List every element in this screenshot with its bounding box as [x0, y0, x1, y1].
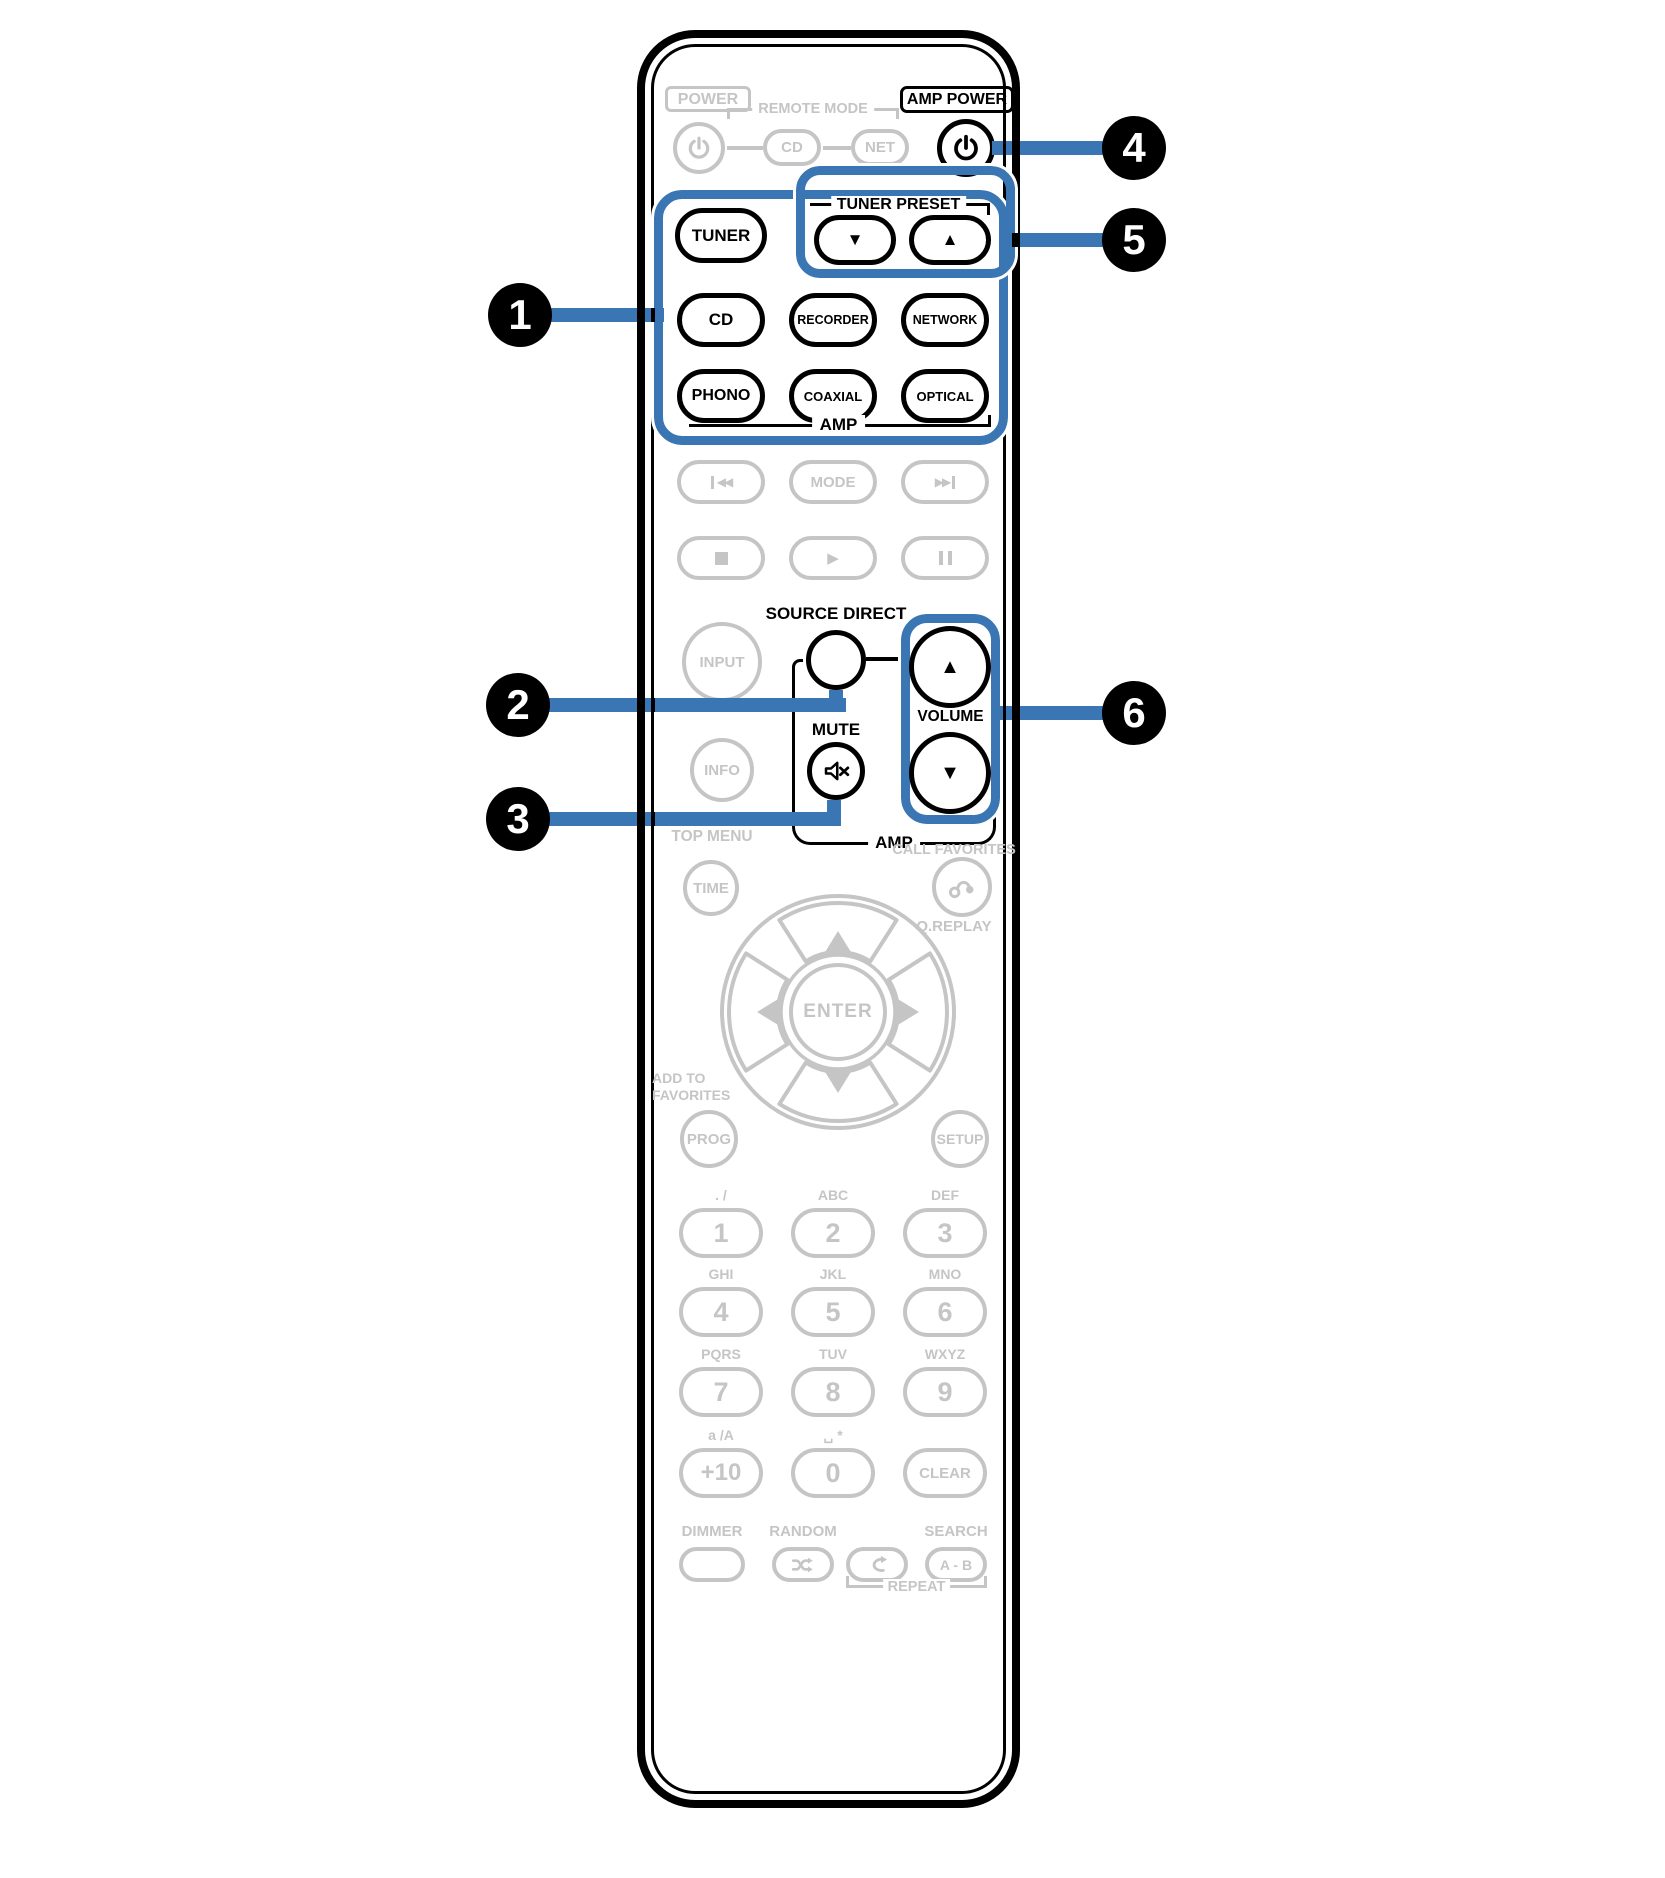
- skip-back-icon: [711, 476, 714, 489]
- input-button: INPUT: [682, 622, 762, 702]
- random-button: [772, 1547, 834, 1582]
- edge-patch: [651, 698, 655, 712]
- key-hint: TUV: [791, 1346, 875, 1362]
- digit-8-button: 8: [791, 1367, 875, 1417]
- search-label: SEARCH: [906, 1523, 1006, 1540]
- remote-body: POWER REMOTE MODE CD NET AMP POWER: [637, 30, 1020, 1808]
- edge-patch: [651, 812, 655, 826]
- remote-mode-bracket: REMOTE MODE: [727, 108, 899, 119]
- connector-line: [823, 146, 851, 150]
- call-favorites-label: CALL FAVORITES: [890, 842, 1018, 858]
- power-icon: [686, 135, 712, 161]
- mode-button: MODE: [789, 460, 877, 504]
- key-hint: MNO: [903, 1266, 987, 1282]
- dimmer-label: DIMMER: [662, 1523, 762, 1540]
- dimmer-button: [679, 1547, 745, 1582]
- play-button: ▶: [789, 536, 877, 580]
- key-hint: ABC: [791, 1187, 875, 1203]
- digit-4-button: 4: [679, 1287, 763, 1337]
- tuner-preset-down-button: ▼: [814, 215, 896, 265]
- edge-patch: [637, 812, 645, 826]
- callout-4-badge: 4: [1102, 116, 1166, 180]
- skip-forward-icon: [952, 476, 955, 489]
- callout-5-line: [1008, 233, 1104, 247]
- repeat-label: REPEAT: [883, 1579, 951, 1595]
- skip-back-glyph: ◀◀: [717, 475, 731, 489]
- callout-3-line: [546, 812, 841, 826]
- sources-amp-label: AMP: [812, 415, 866, 435]
- callout-4-line: [992, 141, 1104, 155]
- remote-control-diagram: POWER REMOTE MODE CD NET AMP POWER: [0, 0, 1665, 1878]
- callout-3-elbow: [827, 800, 841, 826]
- callout-2-line: [546, 698, 846, 712]
- remote-mode-net-button: NET: [851, 129, 909, 166]
- callout-5-badge: 5: [1102, 208, 1166, 272]
- amp-power-label-box: AMP POWER: [900, 86, 1014, 113]
- pause-icon: [948, 551, 952, 565]
- edge-patch: [1003, 706, 1007, 720]
- repeat-bracket: REPEAT: [846, 1576, 987, 1588]
- key-hint: JKL: [791, 1266, 875, 1282]
- volume-down-button: ▼: [909, 732, 991, 814]
- stop-icon: [715, 552, 728, 565]
- network-source-button: NETWORK: [901, 293, 989, 347]
- digit-1-button: 1: [679, 1208, 763, 1258]
- volume-label: VOLUME: [901, 708, 1000, 726]
- tuner-source-button: TUNER: [675, 208, 767, 263]
- recorder-source-button: RECORDER: [789, 293, 877, 347]
- callout-3-badge: 3: [486, 787, 550, 851]
- digit-2-button: 2: [791, 1208, 875, 1258]
- volume-up-button: ▲: [909, 626, 991, 708]
- skip-forward-glyph: ▶▶: [935, 475, 949, 489]
- connector-line: [727, 146, 763, 150]
- key-hint: a /A: [679, 1427, 763, 1443]
- edge-patch: [651, 308, 655, 322]
- edge-patch: [1012, 233, 1020, 247]
- plus-10-button: +10: [679, 1448, 763, 1498]
- digit-3-button: 3: [903, 1208, 987, 1258]
- remote-mode-label: REMOTE MODE: [752, 101, 874, 117]
- edge-patch: [637, 698, 645, 712]
- add-to-favorites-line1: ADD TO: [652, 1070, 772, 1087]
- skip-back-button: ◀◀: [677, 460, 765, 504]
- top-menu-label: TOP MENU: [652, 828, 772, 846]
- mute-button: [807, 742, 865, 800]
- edge-patch: [1012, 706, 1020, 720]
- key-hint: DEF: [903, 1187, 987, 1203]
- edge-patch: [1012, 141, 1020, 155]
- tuner-preset-bracket: TUNER PRESET: [810, 203, 990, 215]
- key-hint: WXYZ: [903, 1346, 987, 1362]
- shuffle-icon: [790, 1552, 816, 1578]
- mute-label: MUTE: [786, 720, 886, 740]
- repeat-icon: [864, 1552, 890, 1578]
- skip-forward-button: ▶▶: [901, 460, 989, 504]
- remote-mode-cd-button: CD: [763, 129, 821, 166]
- callout-2-elbow: [829, 690, 843, 712]
- source-direct-button: [806, 630, 866, 690]
- callout-1-line: [548, 308, 664, 322]
- key-hint: ␣ *: [791, 1427, 875, 1444]
- digit-6-button: 6: [903, 1287, 987, 1337]
- setup-button: SETUP: [931, 1110, 989, 1168]
- callout-6-badge: 6: [1102, 681, 1166, 745]
- key-hint: GHI: [679, 1266, 763, 1282]
- key-hint: . /: [679, 1187, 763, 1203]
- digit-7-button: 7: [679, 1367, 763, 1417]
- edge-patch: [637, 308, 645, 322]
- callout-1-badge: 1: [488, 283, 552, 347]
- add-to-favorites-label: ADD TO FAVORITES: [652, 1070, 772, 1104]
- stop-button: [677, 536, 765, 580]
- connector-line: [866, 657, 904, 661]
- key-hint: PQRS: [679, 1346, 763, 1362]
- tuner-preset-up-button: ▲: [909, 215, 991, 265]
- callout-2-badge: 2: [486, 673, 550, 737]
- digit-5-button: 5: [791, 1287, 875, 1337]
- pause-button: [901, 536, 989, 580]
- info-button: INFO: [690, 738, 754, 802]
- cd-source-button: CD: [677, 293, 765, 347]
- prog-button: PROG: [680, 1110, 738, 1168]
- random-label: RANDOM: [753, 1523, 853, 1540]
- pause-icon: [939, 551, 943, 565]
- clear-button: CLEAR: [903, 1448, 987, 1498]
- power-icon: [951, 133, 981, 163]
- edge-patch: [1003, 141, 1007, 155]
- digit-9-button: 9: [903, 1367, 987, 1417]
- tuner-preset-label: TUNER PRESET: [831, 196, 967, 214]
- add-to-favorites-line2: FAVORITES: [652, 1087, 772, 1104]
- mute-icon: [821, 756, 851, 786]
- sources-amp-bracket: AMP: [689, 415, 991, 427]
- power-button: [673, 122, 725, 174]
- digit-0-button: 0: [791, 1448, 875, 1498]
